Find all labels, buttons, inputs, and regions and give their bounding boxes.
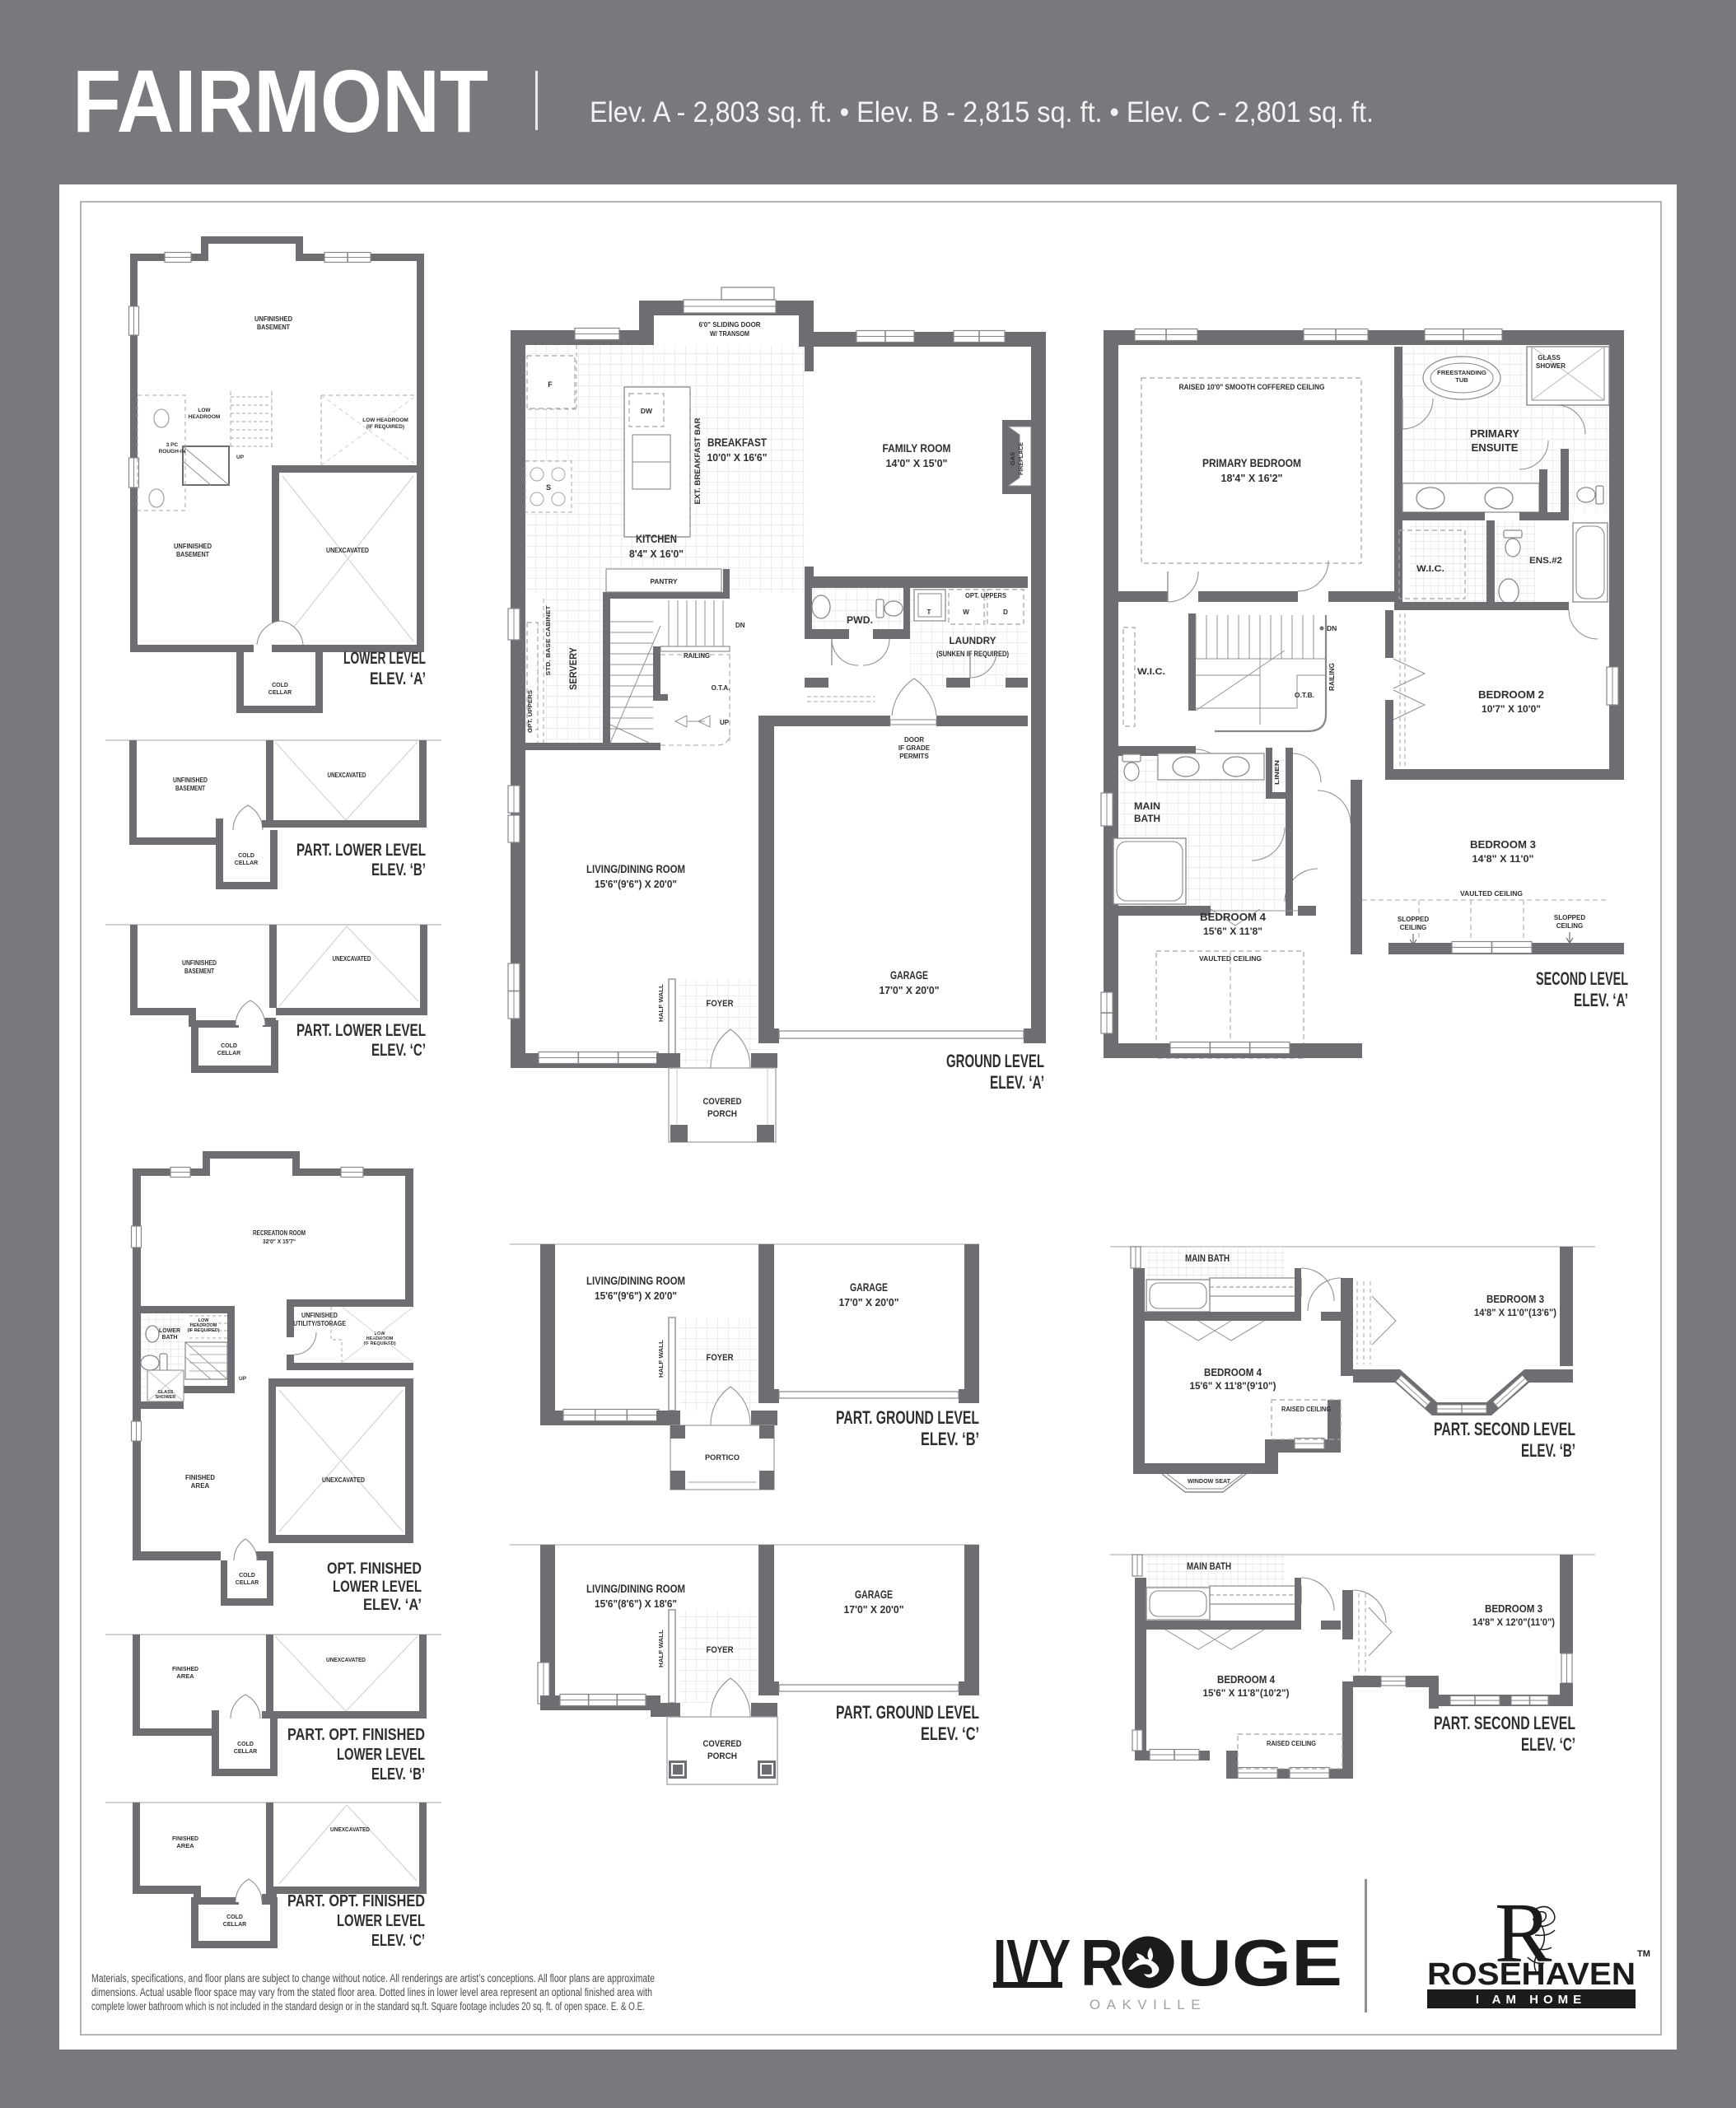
svg-text:(IF REQUIRED): (IF REQUIRED) (187, 1328, 219, 1333)
svg-text:PANTRY: PANTRY (651, 577, 678, 585)
svg-text:DW: DW (641, 407, 653, 415)
svg-text:PART. OPT. FINISHED: PART. OPT. FINISHED (287, 1726, 425, 1744)
svg-text:COLD: COLD (221, 1043, 237, 1049)
svg-text:CELLAR: CELLAR (234, 1749, 257, 1755)
svg-text:UP: UP (236, 455, 245, 460)
svg-text:DN: DN (735, 622, 745, 629)
svg-text:OPT. UPPERS: OPT. UPPERS (526, 690, 534, 733)
svg-text:O.T.A.: O.T.A. (712, 684, 730, 692)
svg-text:HALF WALL: HALF WALL (659, 1339, 665, 1378)
svg-text:14'8" X 11'0"(13'6"): 14'8" X 11'0"(13'6") (1474, 1308, 1556, 1318)
svg-text:FAIRMONT: FAIRMONT (72, 51, 488, 151)
svg-text:PRIMARY: PRIMARY (1470, 427, 1519, 440)
svg-text:CELLAR: CELLAR (223, 1922, 246, 1928)
svg-text:UNFINISHED: UNFINISHED (254, 315, 292, 323)
svg-text:COLD: COLD (238, 853, 254, 859)
svg-text:S: S (546, 483, 551, 492)
svg-text:CEILING: CEILING (1400, 924, 1426, 931)
svg-text:COLD: COLD (237, 1742, 254, 1747)
svg-text:EXT. BREAKFAST BAR: EXT. BREAKFAST BAR (693, 417, 702, 505)
svg-text:14'8" X 12'0"(11'0"): 14'8" X 12'0"(11'0") (1472, 1618, 1555, 1628)
svg-text:UTILITY/STORAGE: UTILITY/STORAGE (293, 1320, 347, 1327)
svg-text:LIVING/DINING ROOM: LIVING/DINING ROOM (586, 1582, 685, 1595)
svg-text:PART. GROUND LEVEL: PART. GROUND LEVEL (836, 1702, 979, 1723)
svg-text:14'8" X 11'0": 14'8" X 11'0" (1472, 853, 1534, 865)
svg-text:UP: UP (720, 719, 730, 726)
svg-text:DOOR: DOOR (904, 736, 924, 744)
svg-text:PERMITS: PERMITS (899, 753, 929, 760)
svg-text:GLASS: GLASS (1538, 354, 1561, 361)
svg-text:RAISED CEILING: RAISED CEILING (1281, 1406, 1331, 1413)
svg-text:CEILING: CEILING (1556, 922, 1583, 930)
svg-text:17'0" X 20'0": 17'0" X 20'0" (880, 985, 940, 996)
svg-text:BEDROOM 4: BEDROOM 4 (1204, 1367, 1262, 1378)
svg-text:PART. SECOND LEVEL: PART. SECOND LEVEL (1434, 1713, 1575, 1733)
svg-text:PART. LOWER LEVEL: PART. LOWER LEVEL (296, 1021, 426, 1040)
svg-text:IF GRADE: IF GRADE (898, 744, 931, 752)
svg-text:ENS.#2: ENS.#2 (1529, 556, 1562, 566)
svg-text:FINISHED: FINISHED (185, 1474, 215, 1481)
svg-text:GARAGE: GARAGE (890, 968, 928, 982)
svg-text:SHOWER: SHOWER (156, 1395, 176, 1400)
svg-text:PART. OPT. FINISHED: PART. OPT. FINISHED (287, 1892, 425, 1910)
svg-text:LOWER LEVEL: LOWER LEVEL (333, 1578, 422, 1596)
svg-text:WINDOW SEAT: WINDOW SEAT (1188, 1477, 1230, 1485)
svg-text:AREA: AREA (191, 1482, 210, 1490)
svg-text:PWD.: PWD. (847, 614, 873, 626)
svg-text:LOW HEADROOM: LOW HEADROOM (362, 417, 408, 423)
svg-text:10'7" X 10'0": 10'7" X 10'0" (1482, 703, 1541, 715)
svg-text:FOYER: FOYER (707, 1353, 734, 1363)
svg-text:8'4" X 16'0": 8'4" X 16'0" (629, 548, 684, 560)
svg-text:(SUNKEN IF REQUIRED): (SUNKEN IF REQUIRED) (936, 650, 1009, 658)
svg-text:UNFINISHED: UNFINISHED (173, 777, 208, 784)
svg-text:3 PC: 3 PC (166, 442, 179, 448)
svg-text:LOWER: LOWER (159, 1328, 180, 1334)
svg-text:10'0" X 16'6": 10'0" X 16'6" (707, 452, 768, 464)
svg-text:MAIN BATH: MAIN BATH (1185, 1254, 1230, 1264)
svg-text:RAISED 10'0" SMOOTH COFFERED C: RAISED 10'0" SMOOTH COFFERED CEILING (1179, 383, 1325, 391)
svg-text:ROSEHAVEN: ROSEHAVEN (1427, 1957, 1636, 1992)
svg-text:UP: UP (239, 1376, 247, 1382)
svg-text:MAIN BATH: MAIN BATH (1187, 1562, 1231, 1572)
svg-text:FINISHED: FINISHED (172, 1665, 199, 1672)
svg-text:W: W (963, 609, 969, 616)
svg-text:COLD: COLD (226, 1914, 243, 1920)
svg-text:PRIMARY BEDROOM: PRIMARY BEDROOM (1202, 456, 1301, 469)
svg-text:LOWER LEVEL: LOWER LEVEL (337, 1746, 425, 1764)
svg-text:BEDROOM 4: BEDROOM 4 (1200, 911, 1267, 923)
svg-text:W.I.C.: W.I.C. (1416, 564, 1444, 574)
svg-text:W/ TRANSOM: W/ TRANSOM (710, 329, 749, 338)
svg-text:ELEV. ‘C’: ELEV. ‘C’ (371, 1041, 426, 1060)
svg-text:ELEV. ‘C’: ELEV. ‘C’ (1521, 1734, 1575, 1755)
svg-text:AREA: AREA (176, 1672, 194, 1680)
svg-text:PART. SECOND LEVEL: PART. SECOND LEVEL (1434, 1419, 1575, 1439)
svg-text:15'6"(8'6") X 18'6": 15'6"(8'6") X 18'6" (595, 1598, 677, 1610)
svg-text:ELEV. ‘B’: ELEV. ‘B’ (921, 1429, 979, 1449)
svg-text:COVERED: COVERED (703, 1097, 742, 1107)
svg-text:18'4" X 16'2": 18'4" X 16'2" (1221, 473, 1283, 484)
svg-text:KITCHEN: KITCHEN (636, 532, 677, 545)
svg-text:ELEV. ‘A’: ELEV. ‘A’ (363, 1596, 422, 1614)
svg-text:FREESTANDING: FREESTANDING (1437, 369, 1486, 376)
svg-text:BASEMENT: BASEMENT (175, 785, 205, 792)
svg-text:FIREPLACE: FIREPLACE (1017, 442, 1024, 475)
svg-text:LIVING/DINING ROOM: LIVING/DINING ROOM (586, 862, 685, 875)
svg-text:DN: DN (1327, 624, 1337, 632)
svg-text:R: R (1080, 1926, 1123, 1999)
svg-text:FAMILY ROOM: FAMILY ROOM (883, 441, 951, 455)
svg-text:Elev. A - 2,803 sq. ft. • El: Elev. A - 2,803 sq. ft. • Elev. B - 2,81… (590, 96, 1374, 128)
svg-text:RAILING: RAILING (684, 652, 710, 660)
svg-text:ELEV. ‘A’: ELEV. ‘A’ (1574, 990, 1628, 1010)
svg-text:BATH: BATH (1134, 814, 1160, 824)
svg-text:LOW: LOW (198, 408, 211, 413)
svg-text:UNEXCAVATED: UNEXCAVATED (326, 547, 369, 554)
svg-text:15'6" X 11'8"(9'10"): 15'6" X 11'8"(9'10") (1190, 1382, 1276, 1392)
svg-text:UGE: UGE (1177, 1926, 1342, 1999)
svg-text:15'6" X 11'8"(10'2"): 15'6" X 11'8"(10'2") (1203, 1689, 1290, 1699)
svg-text:W.I.C.: W.I.C. (1137, 667, 1165, 677)
svg-text:O.T.B.: O.T.B. (1295, 691, 1314, 699)
svg-text:ENSUITE: ENSUITE (1472, 441, 1519, 454)
svg-text:LOWER LEVEL: LOWER LEVEL (343, 649, 426, 668)
svg-text:BATH: BATH (162, 1335, 178, 1341)
svg-text:UNEXCAVATED: UNEXCAVATED (333, 955, 371, 963)
svg-text:HEADROOM: HEADROOM (189, 414, 221, 420)
svg-text:15'6" X 11'8": 15'6" X 11'8" (1203, 926, 1262, 937)
svg-text:LAUNDRY: LAUNDRY (950, 635, 996, 646)
svg-text:TUB: TUB (1455, 376, 1468, 384)
svg-text:BREAKFAST: BREAKFAST (707, 436, 767, 449)
svg-text:BASEMENT: BASEMENT (257, 324, 290, 331)
svg-text:OPT. FINISHED: OPT. FINISHED (327, 1560, 422, 1578)
svg-text:PORTICO: PORTICO (705, 1453, 740, 1462)
svg-text:14'0" X 15'0": 14'0" X 15'0" (886, 458, 948, 469)
svg-text:BEDROOM 3: BEDROOM 3 (1486, 1294, 1544, 1305)
svg-text:17'0" X 20'0": 17'0" X 20'0" (839, 1297, 899, 1308)
svg-text:LIVING/DINING ROOM: LIVING/DINING ROOM (586, 1274, 685, 1287)
svg-text:OAKVILLE: OAKVILLE (1090, 1997, 1206, 2012)
svg-text:6'0" SLIDING DOOR: 6'0" SLIDING DOOR (699, 320, 761, 329)
svg-text:ELEV. ‘B’: ELEV. ‘B’ (1521, 1440, 1575, 1461)
svg-text:UNFINISHED: UNFINISHED (301, 1312, 338, 1319)
svg-text:LOWER LEVEL: LOWER LEVEL (337, 1912, 425, 1930)
svg-text:UNFINISHED: UNFINISHED (182, 959, 217, 967)
svg-text:UNEXCAVATED: UNEXCAVATED (326, 1656, 366, 1663)
svg-text:FOYER: FOYER (707, 1645, 734, 1655)
svg-text:Materials, specifications, and: Materials, specifications, and floor pla… (91, 1972, 655, 1984)
svg-text:SECOND LEVEL: SECOND LEVEL (1536, 968, 1628, 989)
svg-text:LINEN: LINEN (1273, 760, 1281, 785)
svg-text:RAILING: RAILING (1328, 663, 1336, 691)
svg-text:MAIN: MAIN (1134, 802, 1160, 812)
svg-text:UNEXCAVATED: UNEXCAVATED (328, 772, 366, 779)
svg-text:COVERED: COVERED (703, 1739, 742, 1749)
svg-text:CELLAR: CELLAR (236, 1580, 259, 1586)
svg-text:PORCH: PORCH (707, 1751, 737, 1761)
svg-text:SERVERY: SERVERY (567, 647, 579, 690)
svg-text:STD. BASE CABINET: STD. BASE CABINET (544, 605, 552, 675)
svg-text:UNFINISHED: UNFINISHED (174, 543, 212, 550)
svg-text:HALF WALL: HALF WALL (659, 1629, 665, 1667)
svg-text:UNEXCAVATED: UNEXCAVATED (322, 1476, 365, 1484)
svg-text:17'0" X 20'0": 17'0" X 20'0" (844, 1604, 904, 1616)
svg-text:dimensions. Actual usable floo: dimensions. Actual usable floor space ma… (91, 1986, 652, 1998)
svg-text:UNEXCAVATED: UNEXCAVATED (330, 1826, 371, 1833)
svg-text:ELEV. ‘C’: ELEV. ‘C’ (371, 1932, 425, 1950)
svg-text:COLD: COLD (239, 1573, 255, 1579)
svg-text:GARAGE: GARAGE (850, 1280, 888, 1294)
svg-text:I AM HOME: I AM HOME (1476, 1993, 1586, 2007)
svg-text:15'6"(9'6") X 20'0": 15'6"(9'6") X 20'0" (595, 1290, 677, 1302)
svg-text:TM: TM (1637, 1949, 1650, 1959)
svg-text:complete lower bathroom which: complete lower bathroom which is not inc… (91, 2000, 645, 2012)
svg-text:ELEV. ‘A’: ELEV. ‘A’ (990, 1072, 1044, 1093)
svg-text:FINISHED: FINISHED (172, 1835, 199, 1842)
svg-text:BEDROOM 3: BEDROOM 3 (1470, 838, 1536, 851)
svg-text:ROUGH-IN: ROUGH-IN (159, 449, 186, 455)
svg-text:PART. LOWER LEVEL: PART. LOWER LEVEL (296, 841, 426, 860)
svg-text:F: F (548, 380, 553, 389)
svg-text:HALF WALL: HALF WALL (659, 983, 665, 1022)
svg-text:T: T (927, 609, 931, 616)
svg-text:COLD: COLD (272, 683, 288, 688)
svg-text:BASEMENT: BASEMENT (184, 968, 214, 975)
svg-text:15'6"(9'6") X 20'0": 15'6"(9'6") X 20'0" (595, 879, 677, 890)
svg-text:PART. GROUND LEVEL: PART. GROUND LEVEL (836, 1407, 979, 1428)
svg-text:PORCH: PORCH (707, 1109, 737, 1119)
svg-text:VAULTED CEILING: VAULTED CEILING (1460, 889, 1523, 898)
svg-text:FOYER: FOYER (707, 999, 734, 1009)
svg-text:RAISED CEILING: RAISED CEILING (1267, 1740, 1316, 1747)
svg-text:ELEV. ‘B’: ELEV. ‘B’ (371, 860, 426, 879)
svg-text:CELLAR: CELLAR (235, 860, 258, 866)
svg-text:SHOWER: SHOWER (1536, 362, 1566, 370)
svg-text:ELEV. ‘B’: ELEV. ‘B’ (371, 1765, 425, 1784)
svg-text:CELLAR: CELLAR (217, 1051, 240, 1056)
svg-text:32'0" X 15'7": 32'0" X 15'7" (263, 1239, 296, 1245)
svg-text:IVY: IVY (993, 1926, 1071, 1999)
svg-text:BEDROOM 3: BEDROOM 3 (1485, 1603, 1542, 1615)
svg-text:SLOPPED: SLOPPED (1554, 914, 1585, 921)
svg-text:BEDROOM 4: BEDROOM 4 (1217, 1674, 1275, 1686)
svg-text:ELEV. ‘A’: ELEV. ‘A’ (370, 669, 426, 688)
svg-text:D: D (1003, 609, 1008, 616)
svg-text:BASEMENT: BASEMENT (176, 551, 209, 558)
svg-text:BEDROOM 2: BEDROOM 2 (1478, 688, 1544, 701)
svg-text:GROUND LEVEL: GROUND LEVEL (946, 1051, 1044, 1071)
svg-text:(IF REQUIRED): (IF REQUIRED) (366, 424, 404, 430)
svg-text:ELEV. ‘C’: ELEV. ‘C’ (921, 1723, 979, 1744)
svg-text:SLOPPED: SLOPPED (1398, 916, 1429, 923)
svg-text:GARAGE: GARAGE (855, 1588, 893, 1601)
svg-text:VAULTED CEILING: VAULTED CEILING (1199, 954, 1262, 963)
svg-text:OPT. UPPERS: OPT. UPPERS (965, 592, 1007, 599)
svg-text:RECREATION ROOM: RECREATION ROOM (253, 1229, 306, 1237)
svg-text:GAS: GAS (1009, 452, 1016, 465)
svg-text:AREA: AREA (176, 1842, 194, 1849)
svg-text:CELLAR: CELLAR (268, 690, 292, 696)
